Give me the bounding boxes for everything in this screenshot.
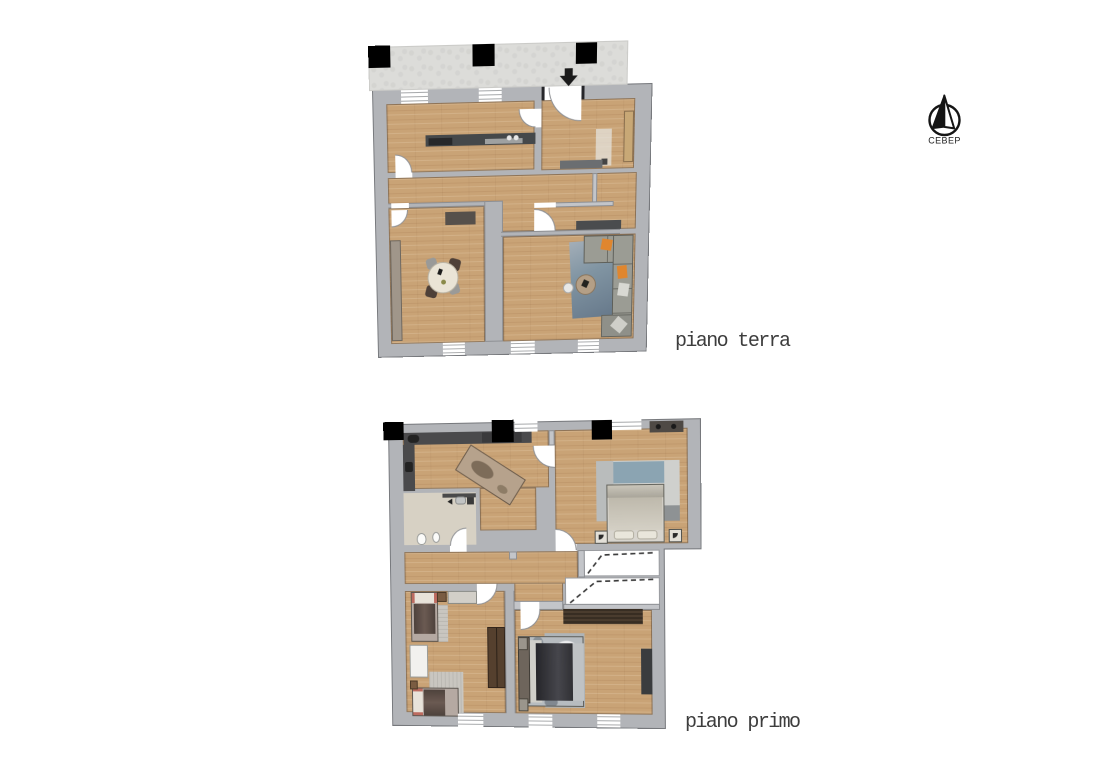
svg-text:СЕВЕР: СЕВЕР [928, 136, 961, 146]
